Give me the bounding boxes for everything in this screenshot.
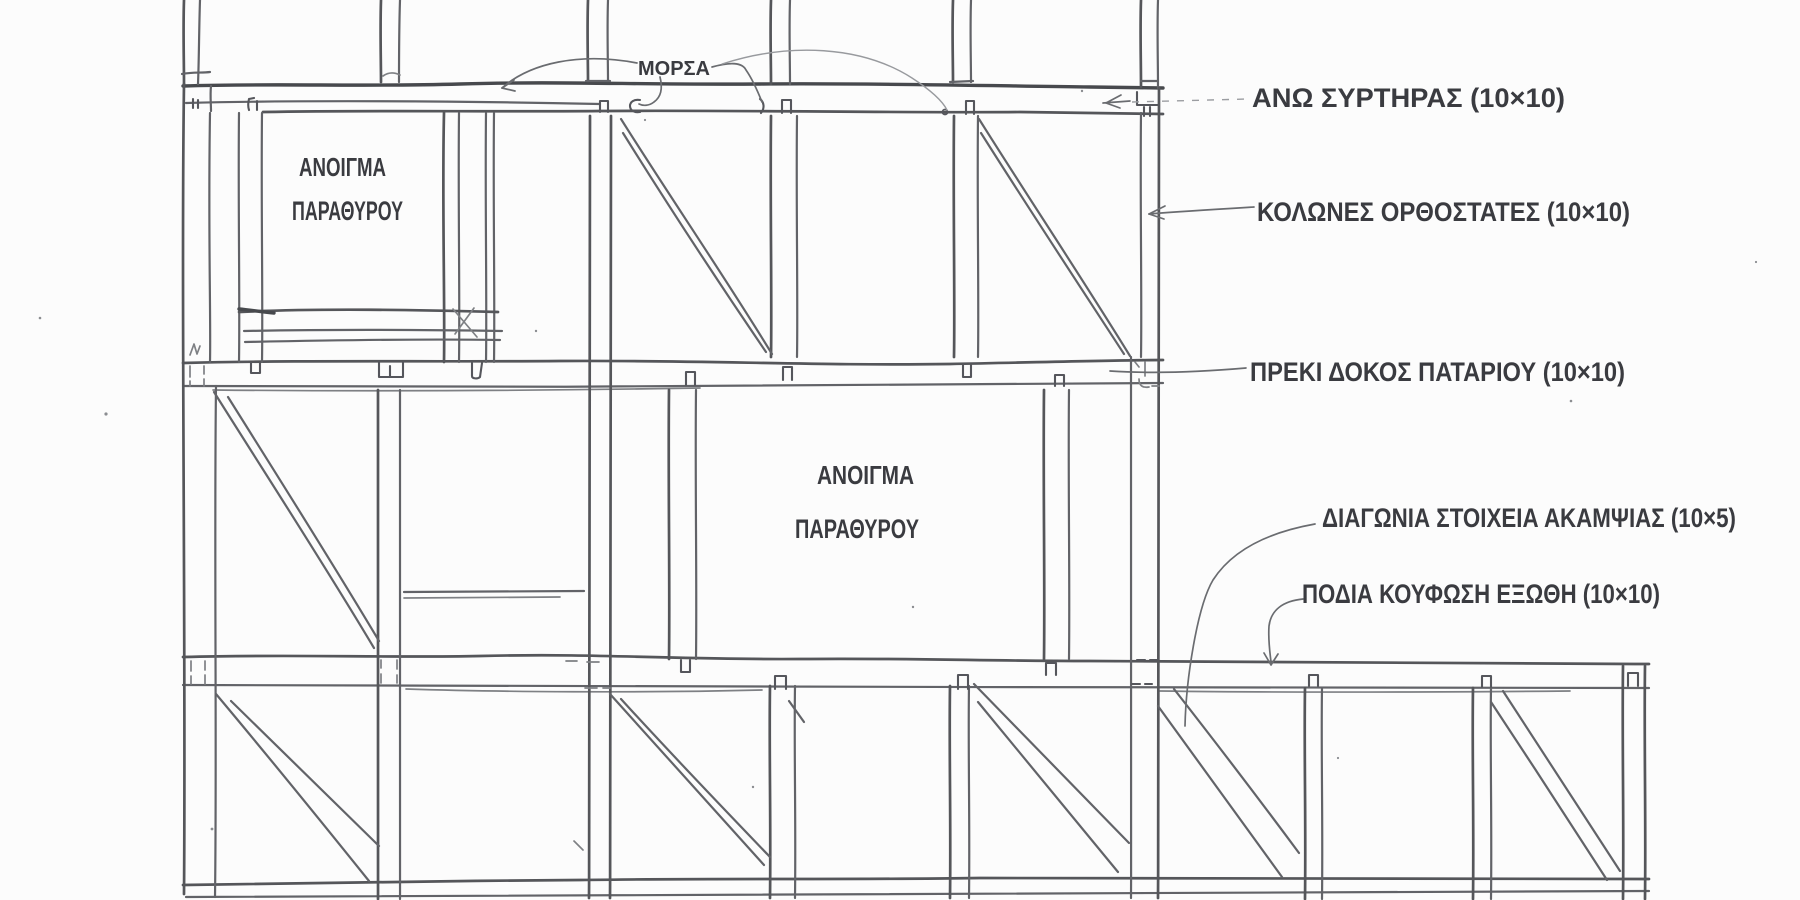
svg-text:ΑΝΩ ΣΥΡΤΗΡΑΣ (10×10): ΑΝΩ ΣΥΡΤΗΡΑΣ (10×10): [1252, 83, 1565, 113]
svg-text:ΚΟΛΩΝΕΣ ΟΡΘΟΣΤΑΤΕΣ (10×10): ΚΟΛΩΝΕΣ ΟΡΘΟΣΤΑΤΕΣ (10×10): [1257, 197, 1630, 227]
svg-text:ΑΝΟΙΓΜΑ: ΑΝΟΙΓΜΑ: [299, 152, 386, 182]
svg-text:ΠΟΔΙΑ ΚΟΥΦΩΣΗ ΕΞΩΘΗ (10×10): ΠΟΔΙΑ ΚΟΥΦΩΣΗ ΕΞΩΘΗ (10×10): [1302, 579, 1660, 609]
svg-text:ΠΑΡΑΘΥΡΟΥ: ΠΑΡΑΘΥΡΟΥ: [292, 196, 403, 226]
svg-text:ΠΑΡΑΘΥΡΟΥ: ΠΑΡΑΘΥΡΟΥ: [795, 514, 919, 544]
svg-text:ΔΙΑΓΩΝΙΑ ΣΤΟΙΧΕΙΑ ΑΚΑΜΨΙΑΣ (10: ΔΙΑΓΩΝΙΑ ΣΤΟΙΧΕΙΑ ΑΚΑΜΨΙΑΣ (10×5): [1322, 503, 1736, 533]
svg-text:ΜΟΡΣΑ: ΜΟΡΣΑ: [638, 58, 710, 80]
svg-text:ΑΝΟΙΓΜΑ: ΑΝΟΙΓΜΑ: [817, 460, 914, 490]
svg-text:ΠΡΕΚΙ ΔΟΚΟΣ ΠΑΤΑΡΙΟΥ (10×10): ΠΡΕΚΙ ΔΟΚΟΣ ΠΑΤΑΡΙΟΥ (10×10): [1250, 357, 1625, 387]
